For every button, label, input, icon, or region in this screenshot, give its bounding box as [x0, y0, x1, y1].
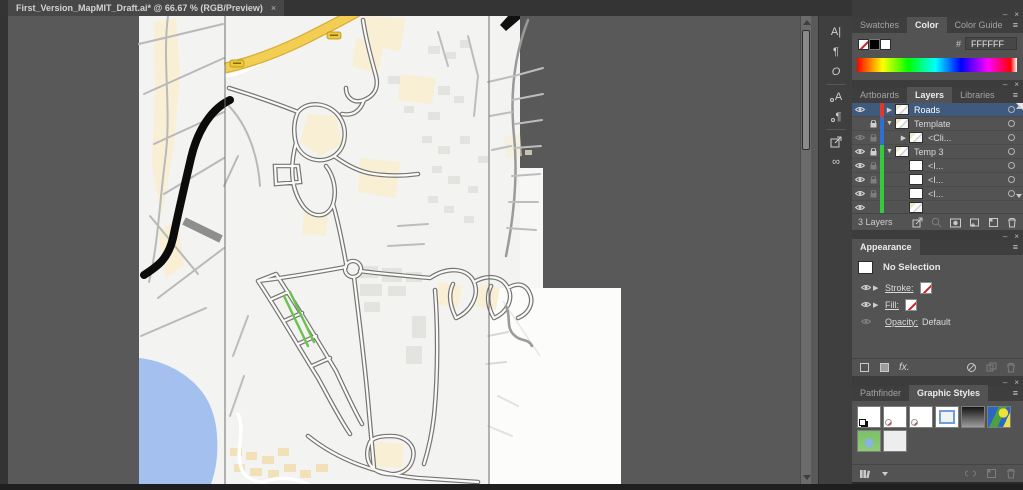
style-map-green[interactable] — [857, 430, 881, 452]
target-circle-icon[interactable] — [1008, 162, 1015, 169]
target-circle-icon[interactable] — [1008, 134, 1015, 141]
style-gradient[interactable] — [961, 406, 985, 428]
add-effect-fx-icon[interactable]: fx. — [899, 362, 910, 373]
scroll-down-icon[interactable] — [803, 475, 811, 480]
style-map-color[interactable] — [987, 406, 1011, 428]
selection-thumbnail — [858, 261, 873, 274]
fill-none-swatch[interactable] — [905, 299, 917, 311]
panel-menu-icon[interactable]: ≡ — [1013, 389, 1018, 401]
tab-appearance[interactable]: Appearance — [852, 239, 920, 255]
visibility-eye-icon[interactable] — [852, 190, 867, 197]
window-bottom-edge — [0, 484, 1023, 490]
style-no-fill-1[interactable] — [883, 406, 907, 428]
opentype-panel-icon[interactable]: O — [819, 62, 853, 82]
layer-color-bar — [880, 201, 884, 214]
lock-icon[interactable] — [867, 120, 880, 128]
duplicate-item-icon[interactable] — [986, 362, 997, 373]
visibility-eye-icon[interactable] — [858, 318, 873, 325]
layer-row-image[interactable]: <I... — [852, 173, 1023, 187]
style-default[interactable] — [857, 406, 881, 428]
appearance-panel-footer: fx. — [852, 358, 1023, 376]
scroll-up-icon[interactable] — [803, 20, 811, 25]
stroke-none-swatch[interactable] — [920, 282, 932, 294]
lock-icon[interactable] — [867, 134, 880, 142]
expand-chevron-icon[interactable]: ▶ — [884, 106, 895, 114]
add-new-stroke-icon[interactable] — [859, 362, 870, 373]
target-circle-icon[interactable] — [1008, 148, 1015, 155]
graphic-styles-footer — [852, 464, 1023, 482]
graphic-styles-grid — [857, 406, 1018, 452]
illustrator-window: First_Version_MapMIT_Draft.ai* @ 66.67 %… — [0, 0, 1023, 490]
collapsed-panel-dock: A| ¶ O A ¶ ∞ — [818, 16, 852, 484]
tab-color[interactable]: Color — [907, 17, 947, 33]
collect-for-export-icon[interactable] — [912, 217, 923, 228]
clear-appearance-icon[interactable] — [966, 362, 977, 373]
target-circle-icon[interactable] — [1008, 120, 1015, 127]
character-panel-icon[interactable]: A| — [819, 22, 853, 42]
layer-name[interactable]: Template — [914, 119, 951, 129]
expand-chevron-icon[interactable]: ▶ — [873, 284, 885, 292]
layer-thumbnail[interactable] — [895, 118, 909, 129]
add-new-fill-icon[interactable] — [879, 362, 890, 373]
tab-graphic-styles[interactable]: Graphic Styles — [909, 385, 988, 401]
panel-menu-icon[interactable]: ≡ — [1013, 21, 1018, 33]
layer-thumbnail[interactable] — [909, 174, 923, 185]
appearance-stroke-row[interactable]: ▶ Stroke: — [852, 279, 1023, 296]
tab-artboards[interactable]: Artboards — [852, 87, 907, 103]
artboard-canvas[interactable] — [8, 16, 818, 484]
layers-panel-group: – × Artboards Layers Libraries ≡ ▶ — [852, 80, 1023, 230]
export-panel-icon[interactable] — [819, 132, 853, 152]
expand-chevron-icon[interactable]: ▶ — [873, 301, 885, 309]
color-panel-group: – × Swatches Color Color Guide ≡ # FFFFF… — [852, 10, 1023, 80]
color-panel-body: # FFFFFF — [852, 33, 1023, 80]
visibility-eye-icon[interactable] — [852, 134, 867, 141]
color-spectrum-bar[interactable] — [857, 58, 1017, 72]
layers-panel-tabs: Artboards Layers Libraries ≡ — [852, 88, 1023, 103]
character-styles-panel-icon[interactable]: A — [819, 87, 853, 107]
visibility-eye-icon[interactable] — [852, 162, 867, 169]
dock-divider — [826, 84, 846, 85]
panel-menu-icon[interactable]: ≡ — [1013, 243, 1018, 255]
fill-label[interactable]: Fill: — [885, 300, 899, 310]
layer-name[interactable]: Temp 3 — [914, 147, 944, 157]
white-swatch[interactable] — [880, 39, 891, 50]
layer-row-clip-group[interactable]: ▶ <Cli... — [852, 131, 1023, 145]
layer-thumbnail[interactable] — [909, 160, 923, 171]
break-link-icon[interactable] — [964, 468, 977, 479]
canvas-vertical-scrollbar[interactable] — [800, 16, 811, 484]
document-tab[interactable]: First_Version_MapMIT_Draft.ai* @ 66.67 %… — [8, 0, 284, 16]
stroke-label[interactable]: Stroke: — [885, 283, 914, 293]
layers-panel-body: ▶ Roads ▼ Template — [852, 103, 1023, 230]
style-no-fill-2[interactable] — [909, 406, 933, 428]
new-sublayer-icon[interactable] — [969, 217, 980, 228]
layer-name[interactable]: Roads — [914, 105, 940, 115]
graphic-styles-panel-tabs: Pathfinder Graphic Styles ≡ — [852, 386, 1023, 401]
layer-row-temp3[interactable]: ▼ Temp 3 — [852, 145, 1023, 159]
layer-thumbnail[interactable] — [909, 132, 923, 143]
none-swatch[interactable] — [858, 39, 869, 50]
layer-count-label: 3 Layers — [858, 217, 893, 227]
layer-name[interactable]: <I... — [928, 189, 943, 199]
layer-color-bar — [880, 187, 884, 201]
target-circle-icon[interactable] — [1008, 106, 1015, 113]
opacity-value: Default — [922, 317, 951, 327]
layer-name[interactable]: <I... — [928, 175, 943, 185]
layer-name[interactable]: <I... — [928, 161, 943, 171]
delete-style-icon[interactable] — [1006, 468, 1016, 479]
lock-icon[interactable] — [867, 162, 880, 170]
visibility-eye-icon[interactable] — [852, 176, 867, 183]
links-panel-icon[interactable]: ∞ — [819, 152, 853, 172]
layer-row-image[interactable]: <I... — [852, 187, 1023, 201]
lock-icon[interactable] — [867, 190, 880, 198]
expand-chevron-icon[interactable]: ▼ — [884, 148, 895, 155]
no-selection-label: No Selection — [883, 262, 941, 273]
graphic-styles-panel-body — [852, 401, 1023, 482]
layer-color-bar — [880, 131, 884, 145]
layer-thumbnail[interactable] — [909, 188, 923, 199]
tab-layers[interactable]: Layers — [907, 87, 952, 103]
scrollbar-thumb[interactable] — [802, 30, 810, 150]
delete-item-icon[interactable] — [1006, 362, 1016, 373]
lock-icon[interactable] — [867, 148, 880, 156]
locate-object-icon[interactable] — [931, 217, 942, 228]
make-clipping-mask-icon[interactable] — [950, 217, 961, 228]
paragraph-styles-panel-icon[interactable]: ¶ — [819, 107, 853, 127]
layer-thumbnail[interactable] — [909, 202, 923, 213]
layer-thumbnail[interactable] — [895, 104, 909, 115]
visibility-eye-icon[interactable] — [852, 148, 867, 155]
expand-chevron-icon[interactable]: ▶ — [898, 134, 909, 142]
delete-layer-icon[interactable] — [1007, 217, 1017, 228]
tab-pathfinder[interactable]: Pathfinder — [852, 385, 909, 401]
expand-chevron-icon[interactable]: ▼ — [884, 120, 895, 127]
layer-color-bar — [880, 159, 884, 173]
appearance-panel-group: – × Appearance ≡ No Selection ▶ Stroke: — [852, 232, 1023, 376]
new-layer-icon[interactable] — [988, 217, 999, 228]
layer-row-partial[interactable] — [852, 201, 1023, 213]
visibility-eye-icon[interactable] — [852, 204, 867, 211]
tab-close-icon[interactable]: × — [271, 3, 276, 13]
color-panel-tabs: Swatches Color Color Guide ≡ — [852, 18, 1023, 33]
libraries-caret-icon[interactable] — [882, 472, 888, 476]
style-light[interactable] — [883, 430, 907, 452]
target-circle-icon[interactable] — [1008, 176, 1015, 183]
appearance-panel-body: No Selection ▶ Stroke: ▶ Fill: — [852, 255, 1023, 376]
paragraph-panel-icon[interactable]: ¶ — [819, 42, 853, 62]
target-circle-icon[interactable] — [1008, 190, 1015, 197]
tab-swatches[interactable]: Swatches — [852, 17, 907, 33]
layer-thumbnail[interactable] — [895, 146, 909, 157]
opacity-label[interactable]: Opacity: — [885, 317, 918, 327]
appearance-panel-tabs: Appearance ≡ — [852, 240, 1023, 255]
style-blue-stroke[interactable] — [935, 406, 959, 428]
visibility-eye-icon[interactable] — [852, 106, 867, 113]
layers-panel-footer: 3 Layers — [852, 213, 1023, 230]
window-left-edge — [0, 16, 8, 484]
map-artwork — [8, 16, 818, 484]
visibility-eye-icon[interactable] — [858, 301, 873, 308]
appearance-opacity-row[interactable]: Opacity: Default — [852, 313, 1023, 330]
appearance-selection-row: No Selection — [852, 255, 1023, 279]
style-libraries-icon[interactable] — [859, 468, 871, 479]
layer-color-bar — [880, 173, 884, 187]
new-graphic-style-icon[interactable] — [986, 468, 997, 479]
dock-divider — [826, 129, 846, 130]
appearance-fill-row[interactable]: ▶ Fill: — [852, 296, 1023, 313]
hex-hash-label: # — [956, 39, 961, 49]
layer-row-roads[interactable]: ▶ Roads — [852, 103, 1023, 117]
layer-name[interactable]: <Cli... — [928, 133, 951, 143]
layers-list: ▶ Roads ▼ Template — [852, 103, 1023, 213]
document-title: First_Version_MapMIT_Draft.ai* @ 66.67 %… — [16, 3, 263, 13]
list-scroll-up-icon[interactable] — [1016, 105, 1022, 109]
layer-row-template[interactable]: ▼ Template — [852, 117, 1023, 131]
layer-row-image[interactable]: <I... — [852, 159, 1023, 173]
tab-color-guide[interactable]: Color Guide — [947, 17, 1011, 33]
black-swatch[interactable] — [869, 39, 880, 50]
tab-libraries[interactable]: Libraries — [952, 87, 1003, 103]
graphic-styles-panel-group: – × Pathfinder Graphic Styles ≡ — [852, 378, 1023, 482]
hex-color-input[interactable]: FFFFFF — [965, 37, 1017, 50]
list-scroll-down-icon[interactable] — [1016, 194, 1022, 198]
lock-icon[interactable] — [867, 176, 880, 184]
panel-dock: – × Swatches Color Color Guide ≡ # FFFFF… — [852, 0, 1023, 490]
visibility-eye-icon[interactable] — [858, 284, 873, 291]
panel-menu-icon[interactable]: ≡ — [1013, 91, 1018, 103]
